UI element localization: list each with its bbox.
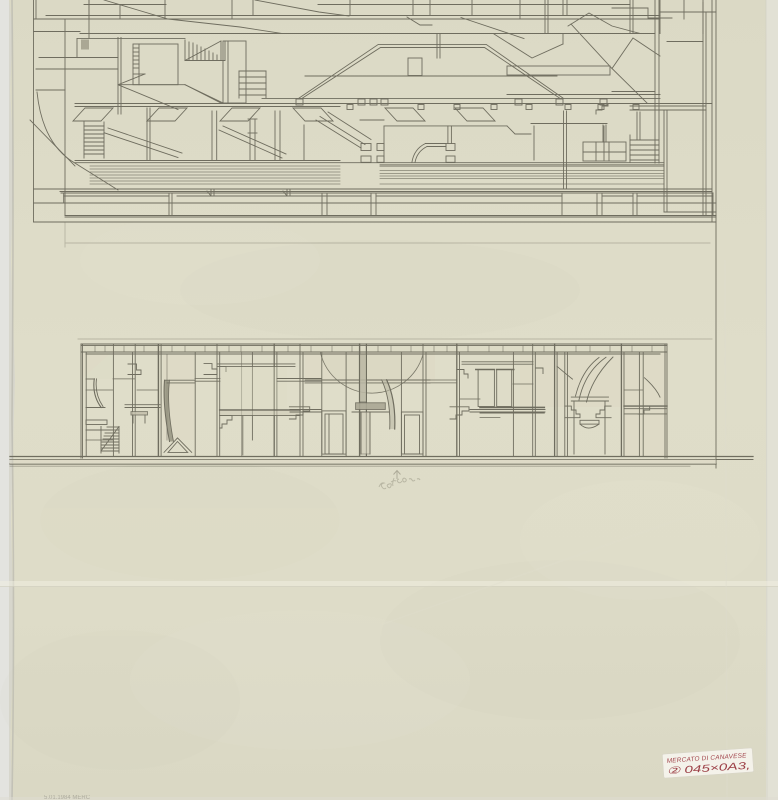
- svg-text:5.01.1984 MERC: 5.01.1984 MERC: [44, 795, 91, 800]
